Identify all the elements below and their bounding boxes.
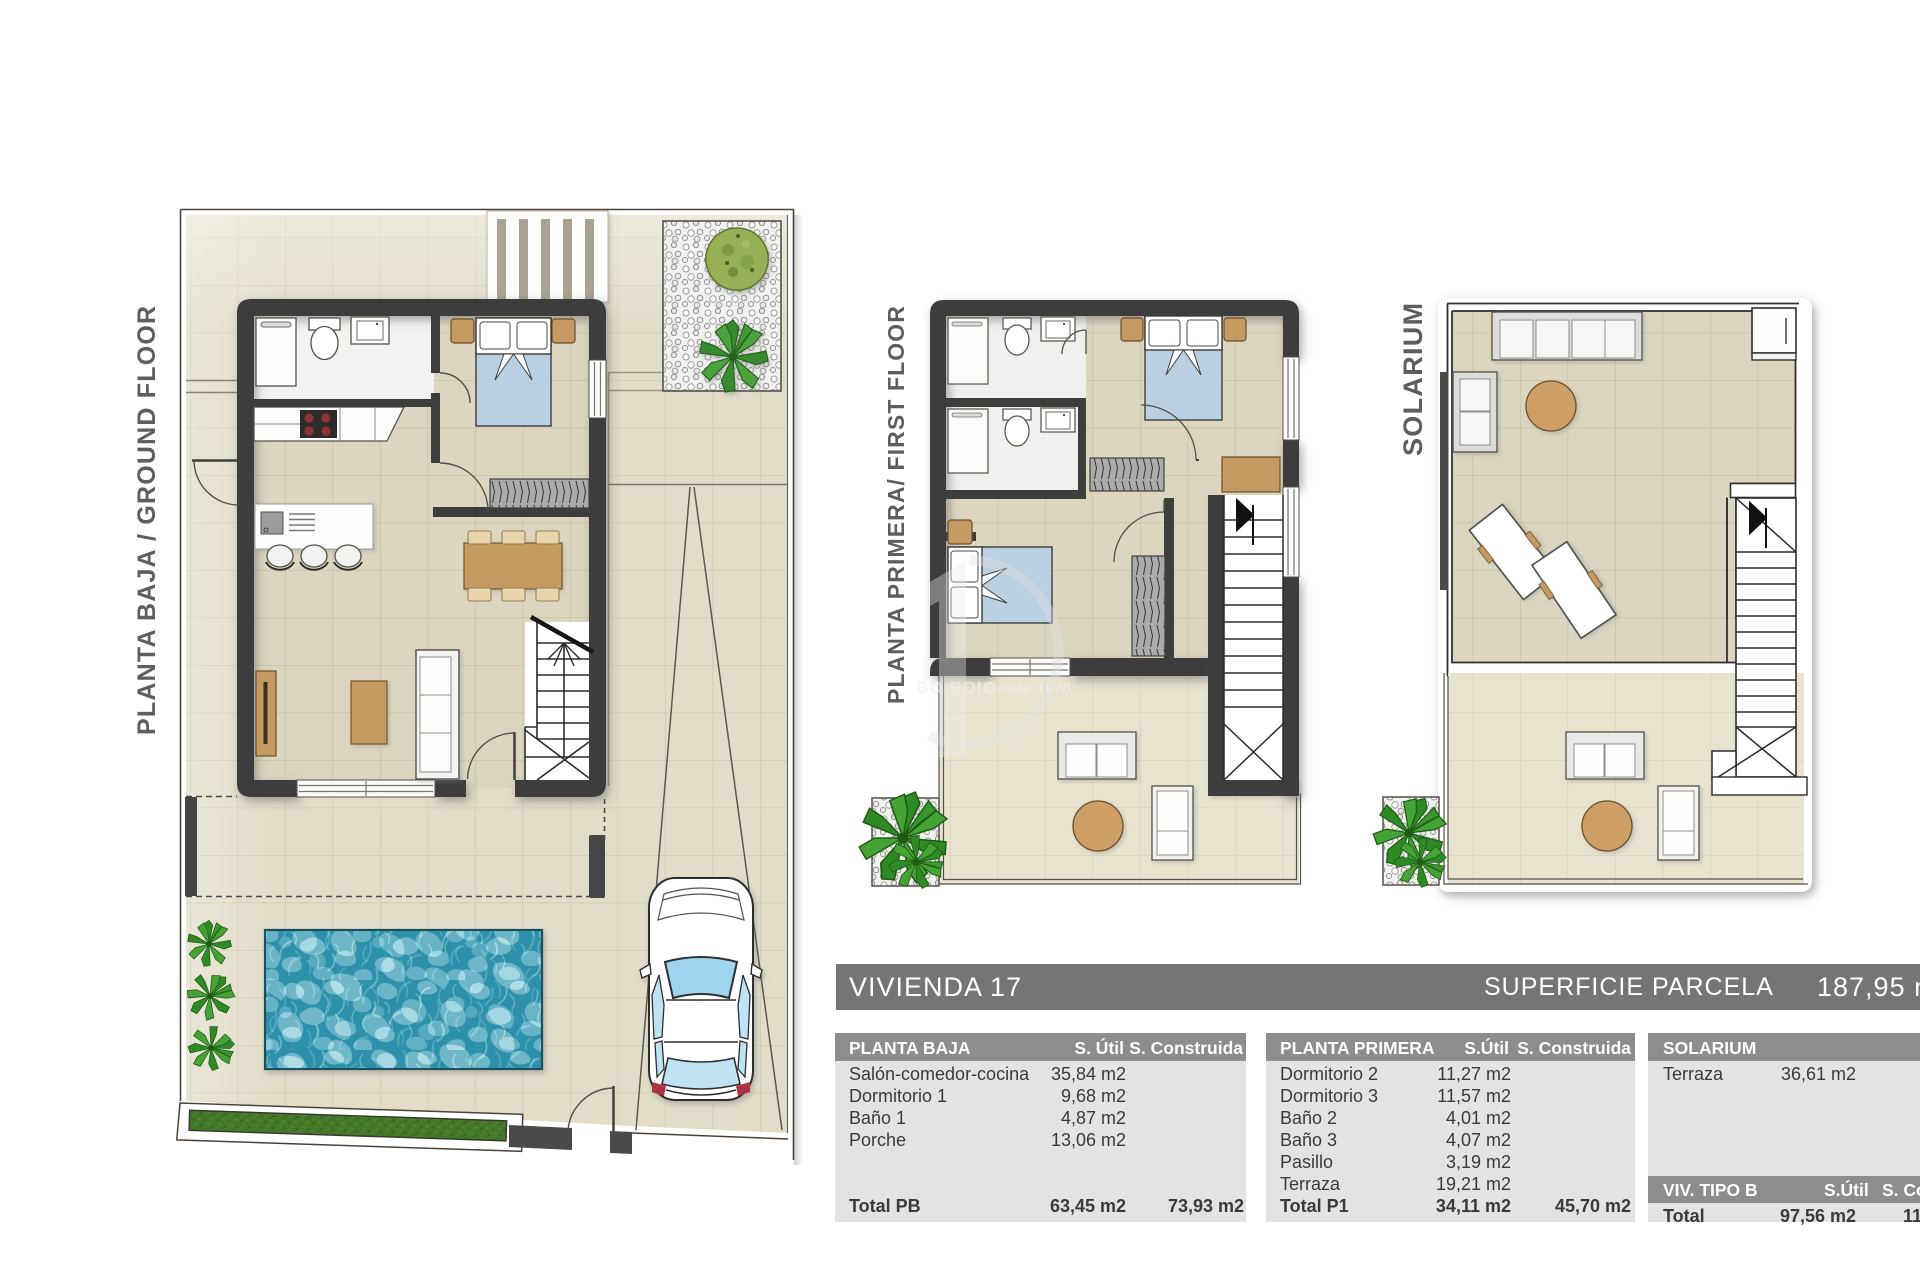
svg-text:BO ROIG: BO ROIG bbox=[916, 678, 997, 697]
svg-text:Desde 1970: Desde 1970 bbox=[986, 680, 1072, 696]
